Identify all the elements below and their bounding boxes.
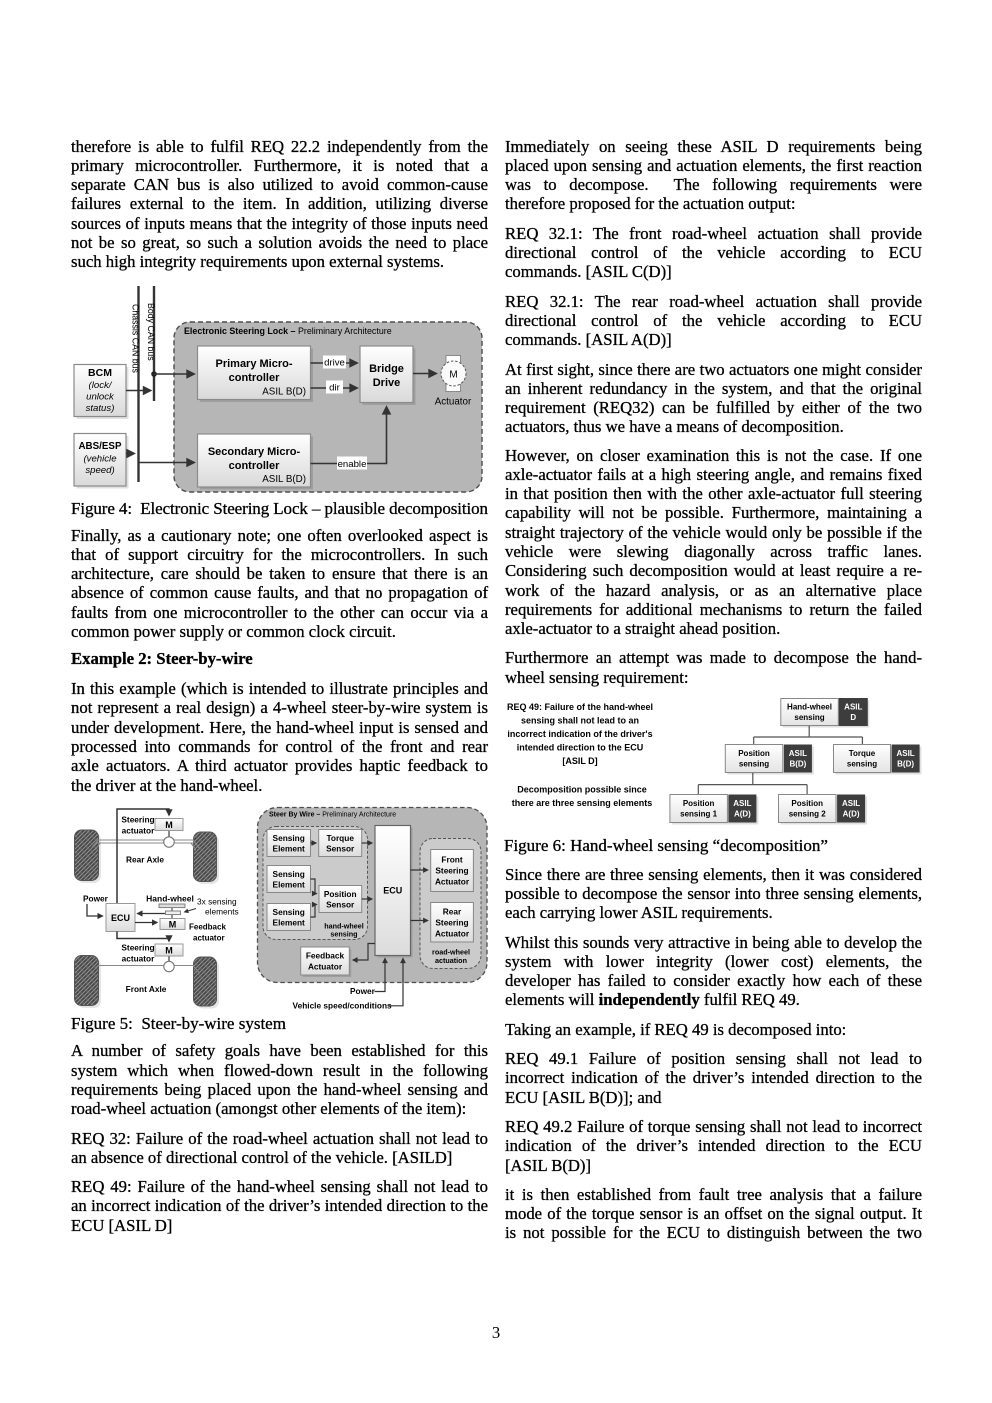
svg-text:sensing: sensing (739, 760, 769, 769)
svg-text:actuator: actuator (122, 826, 156, 836)
svg-text:Front: Front (441, 855, 462, 865)
svg-text:A(D): A(D) (734, 810, 751, 819)
svg-text:Sensor: Sensor (326, 900, 355, 910)
svg-text:ABS/ESP: ABS/ESP (78, 441, 121, 452)
svg-text:M: M (165, 820, 173, 830)
svg-text:A(D): A(D) (843, 810, 860, 819)
svg-text:intended direction to the ECU: intended direction to the ECU (517, 743, 644, 753)
svg-text:Steering: Steering (435, 866, 468, 876)
svg-text:Element: Element (273, 844, 306, 854)
svg-text:B(D): B(D) (789, 760, 806, 769)
svg-text:(lock/: (lock/ (89, 380, 113, 391)
svg-text:Torque: Torque (849, 749, 876, 758)
svg-text:(vehicle: (vehicle (83, 454, 116, 465)
svg-text:ASIL: ASIL (896, 749, 914, 758)
svg-text:Primary Micro-: Primary Micro- (215, 358, 292, 370)
svg-text:Power: Power (83, 894, 109, 904)
svg-text:REQ 49: Failure of the hand-wh: REQ 49: Failure of the hand-wheel (507, 702, 653, 712)
svg-text:Rear Axle: Rear Axle (126, 855, 164, 865)
svg-text:Steering: Steering (121, 815, 154, 825)
svg-text:Element: Element (273, 880, 306, 890)
svg-text:there are three sensing elemen: there are three sensing elements (512, 798, 653, 808)
svg-text:Sensing: Sensing (273, 869, 305, 879)
svg-text:Decomposition possible since: Decomposition possible since (517, 785, 647, 795)
svg-text:ECU: ECU (383, 886, 402, 896)
svg-text:Vehicle speed/conditions: Vehicle speed/conditions (293, 1001, 393, 1011)
svg-text:Bridge: Bridge (369, 363, 404, 375)
svg-text:Drive: Drive (373, 377, 401, 389)
svg-text:Front Axle: Front Axle (126, 984, 167, 994)
svg-text:D: D (850, 713, 856, 722)
svg-text:ASIL B(D): ASIL B(D) (262, 474, 306, 485)
svg-text:Sensing: Sensing (273, 907, 305, 917)
svg-text:Steering: Steering (435, 918, 468, 928)
svg-text:drive: drive (324, 358, 345, 369)
svg-text:Electronic Steering Lock – Pre: Electronic Steering Lock – Preliminary A… (184, 326, 392, 336)
svg-text:Rear: Rear (443, 907, 462, 917)
svg-text:3x sensing: 3x sensing (197, 897, 237, 907)
svg-text:ASIL: ASIL (789, 749, 807, 758)
svg-text:ASIL: ASIL (844, 703, 862, 712)
svg-text:controller: controller (229, 372, 280, 384)
svg-text:status): status) (86, 403, 115, 414)
svg-text:BCM: BCM (88, 367, 112, 379)
svg-text:sensing: sensing (794, 713, 824, 722)
svg-text:controller: controller (229, 460, 280, 472)
svg-text:Steer By Wire – Preliminary Ar: Steer By Wire – Preliminary Architecture (269, 812, 396, 819)
svg-text:ASIL: ASIL (842, 799, 860, 808)
svg-text:Actuator: Actuator (435, 397, 472, 408)
svg-text:Secondary Micro-: Secondary Micro- (208, 446, 301, 458)
svg-text:Hand-wheel: Hand-wheel (787, 703, 832, 712)
svg-text:M: M (449, 370, 457, 381)
svg-text:dir: dir (329, 383, 340, 394)
svg-text:Feedback: Feedback (306, 951, 345, 961)
svg-text:Chassis CAN bus: Chassis CAN bus (131, 304, 141, 374)
svg-text:sensing: sensing (330, 930, 357, 939)
svg-text:M: M (169, 920, 177, 930)
svg-text:unlock: unlock (86, 392, 115, 403)
svg-text:Sensing: Sensing (273, 833, 305, 843)
svg-text:Actuator: Actuator (308, 962, 343, 972)
svg-text:Position: Position (683, 799, 715, 808)
svg-text:sensing 1: sensing 1 (680, 810, 717, 819)
svg-text:Actuator: Actuator (435, 929, 470, 939)
svg-text:ASIL: ASIL (733, 799, 751, 808)
svg-text:elements: elements (205, 907, 239, 917)
svg-text:Position: Position (791, 799, 823, 808)
svg-text:Position: Position (324, 889, 357, 899)
svg-text:actuation: actuation (435, 956, 467, 965)
svg-text:M: M (165, 946, 173, 956)
svg-text:Power: Power (350, 986, 376, 996)
svg-text:sensing shall not lead to an: sensing shall not lead to an (521, 716, 639, 726)
svg-text:Feedback: Feedback (189, 923, 226, 932)
svg-text:actuator: actuator (122, 954, 156, 964)
svg-text:incorrect indication of the dr: incorrect indication of the driver's (507, 729, 652, 739)
svg-text:speed): speed) (85, 465, 114, 476)
svg-text:ECU: ECU (111, 913, 130, 923)
svg-text:actuator: actuator (193, 934, 225, 943)
svg-text:Element: Element (273, 918, 306, 928)
svg-text:Hand-wheel: Hand-wheel (146, 894, 194, 904)
svg-text:sensing: sensing (847, 760, 877, 769)
svg-text:Sensor: Sensor (326, 844, 355, 854)
svg-text:B(D): B(D) (897, 760, 914, 769)
svg-text:ASIL B(D): ASIL B(D) (262, 387, 306, 398)
svg-text:Position: Position (738, 749, 770, 758)
svg-text:Torque: Torque (326, 833, 354, 843)
svg-text:enable: enable (338, 459, 367, 470)
svg-text:Body CAN bus: Body CAN bus (146, 303, 156, 361)
svg-text:sensing 2: sensing 2 (789, 810, 826, 819)
svg-text:Actuator: Actuator (435, 877, 470, 887)
svg-text:Steering: Steering (121, 943, 154, 953)
svg-text:[ASIL D]: [ASIL D] (562, 756, 597, 766)
